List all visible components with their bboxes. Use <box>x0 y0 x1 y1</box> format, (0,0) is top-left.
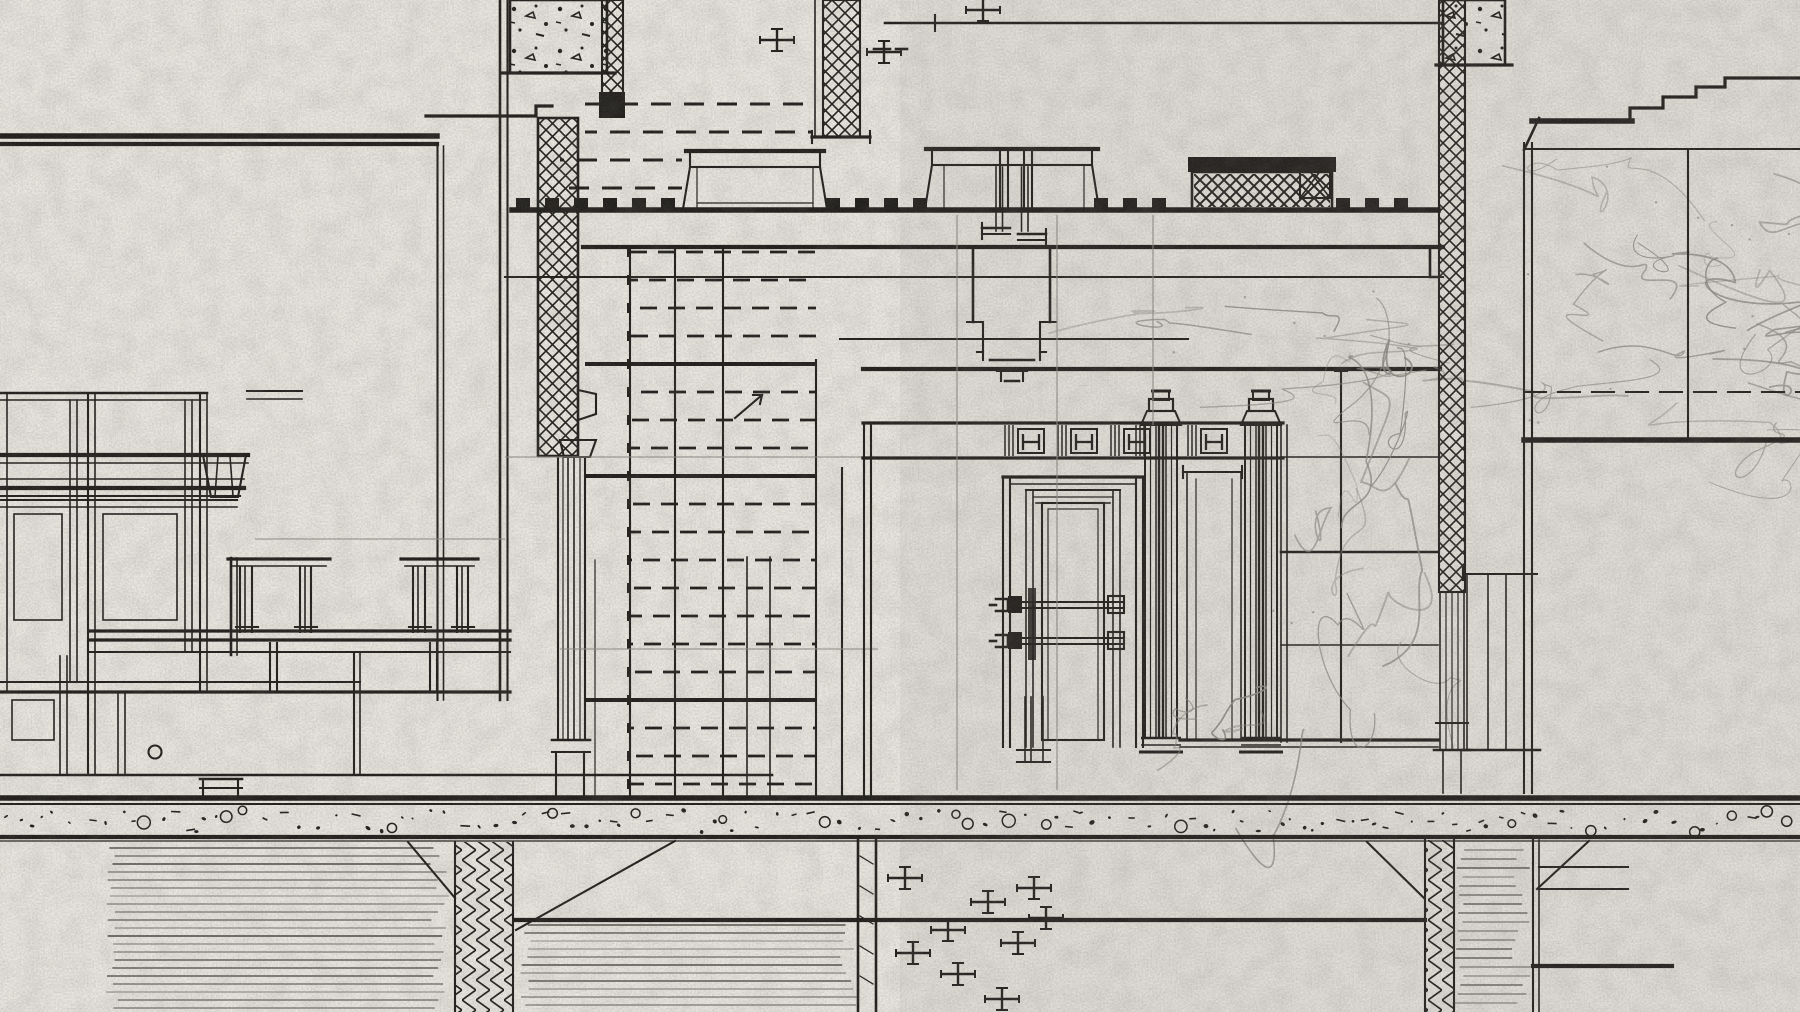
scanned-drawing-page <box>0 0 1800 1012</box>
section-drawing <box>0 0 1800 1012</box>
paper-grain-texture <box>0 0 1800 1012</box>
